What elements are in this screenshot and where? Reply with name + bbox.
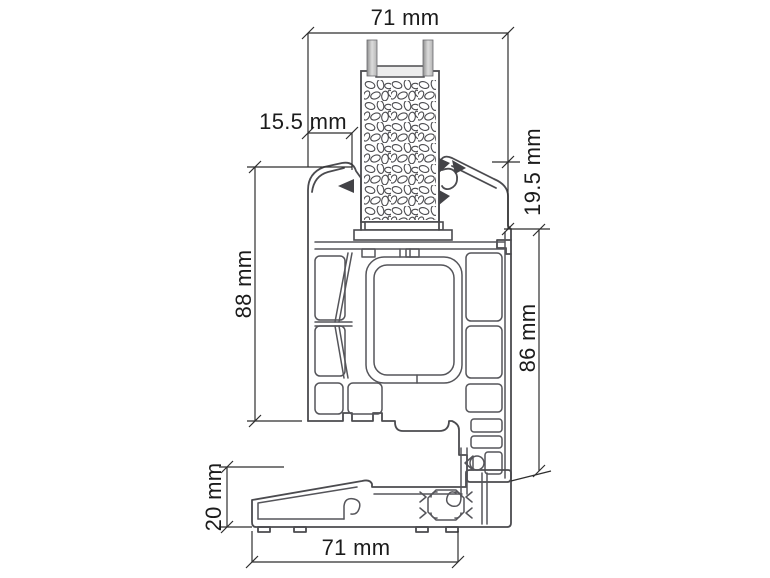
glazing-bridge xyxy=(354,230,452,240)
diagonal-strut-lower xyxy=(335,326,348,378)
sill-foot xyxy=(258,527,270,532)
frame-height-label: 88 mm xyxy=(231,250,256,319)
glass-pane-left xyxy=(367,40,377,76)
technical-drawing-page: 71 mm 15.5 mm 19.5 mm 88 mm 86 mm 20 mm … xyxy=(0,0,770,578)
window-profile-cross-section: 71 mm 15.5 mm 19.5 mm 88 mm 86 mm 20 mm … xyxy=(0,0,770,578)
chamber-cell xyxy=(348,383,382,414)
mid-divider xyxy=(315,322,352,326)
glazing-unit xyxy=(354,40,452,240)
sill-profile xyxy=(252,470,511,532)
sill-foot xyxy=(416,527,428,532)
thermal-break-teeth-right xyxy=(466,492,472,518)
gasket-clip-ring xyxy=(470,456,484,470)
sill-inner-slope xyxy=(258,487,357,519)
chamber-cell xyxy=(471,419,502,432)
gasket-strip xyxy=(447,448,461,506)
shelf-rib-left xyxy=(362,249,375,257)
sill-upstand-inner-wall xyxy=(482,473,487,524)
reinforcement-chamber-outer xyxy=(366,257,462,383)
sill-height-label: 20 mm xyxy=(201,463,226,532)
glazing-edge-seal-hatch xyxy=(364,80,436,220)
sill-drip-hook xyxy=(344,499,360,519)
sash-height-label: 86 mm xyxy=(515,304,540,373)
bead-height-label: 19.5 mm xyxy=(520,128,545,216)
glazing-spacer-bar xyxy=(376,66,424,77)
sill-foot xyxy=(446,527,458,532)
gasket-right-upper xyxy=(439,158,450,173)
glazing-packer xyxy=(365,222,443,230)
frame-inner-structure xyxy=(315,232,505,478)
gasket-right-lower xyxy=(439,190,450,205)
diagonal-strut-upper xyxy=(335,253,352,322)
sill-foot xyxy=(294,527,306,532)
top-width-label: 71 mm xyxy=(371,5,440,30)
chamber-cell xyxy=(466,253,502,321)
octagon-corner-curl xyxy=(431,513,437,518)
sill-inner-structure xyxy=(258,473,487,524)
glazing-inset-label: 15.5 mm xyxy=(259,109,347,134)
reinforcement-chamber-inner xyxy=(374,265,454,375)
chamber-cell xyxy=(315,383,343,414)
shelf-rib-right xyxy=(406,249,419,257)
sash-height-leader xyxy=(511,471,551,481)
chamber-cell xyxy=(471,436,502,448)
chamber-cell xyxy=(466,326,502,378)
chamber-cell xyxy=(466,384,502,412)
gasket-left-arrow xyxy=(338,179,354,193)
octagon-corner-curl xyxy=(455,513,461,518)
thermal-break-teeth-left xyxy=(420,492,426,518)
chamber-top-tab xyxy=(400,249,410,257)
sill-depth-label: 71 mm xyxy=(322,535,391,560)
glass-pane-right xyxy=(423,40,433,76)
